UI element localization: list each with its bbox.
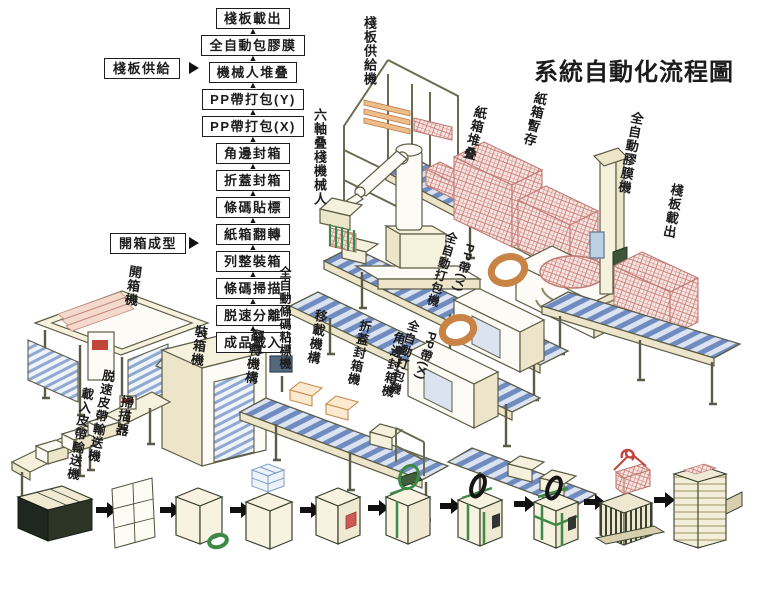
robot-gripper (320, 198, 362, 252)
page-title: 系統自動化流程圖 (534, 52, 734, 87)
process-stage-product-case-loading (246, 464, 292, 549)
label-pallet-supply-machine: 棧板供給機 (362, 16, 376, 86)
process-arrow-icon (654, 492, 675, 508)
flowchart: 棧板載出 ▲ 全自動包膠膜 ▲ 機械人堆叠 ▲ PP帶打包(Y) ▲ PP帶打包… (188, 8, 318, 353)
flow-right-arrow-icon (189, 62, 205, 74)
machinery-illustration (0, 0, 761, 601)
process-stage-stacked-carton-blanks (18, 486, 92, 541)
flow-right-arrow-icon (189, 237, 205, 249)
process-stage-carton-blank (112, 478, 155, 548)
process-arrow-icon (514, 496, 535, 512)
process-stage-wrapped-pallet-output (674, 464, 742, 548)
label-barcode-labeler: 全自動條碼粘標機 (278, 266, 291, 370)
process-stage-erected-carton-taping (176, 488, 228, 549)
process-stage-sealed-case-labeled (316, 488, 360, 544)
label-six-axis-robot: 六軸叠棧機械人 (312, 108, 326, 206)
diagram-canvas: 系統自動化流程圖 棧板載出 ▲ 全自動包膠膜 ▲ 機械人堆叠 ▲ PP帶打包(Y… (0, 0, 761, 601)
flow-input-pallet-supply: 棧板供給 (104, 58, 180, 79)
process-stage-robot-palletizing (596, 450, 664, 545)
flow-input-case-forming: 開箱成型 (110, 233, 186, 254)
